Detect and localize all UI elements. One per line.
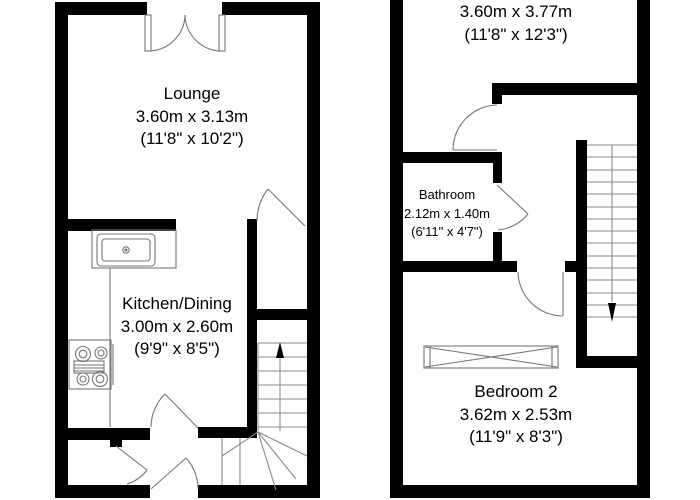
plan-symbols [0, 0, 700, 500]
bedroom2-door [518, 272, 563, 316]
floorplan: Lounge 3.60m x 3.13m (11'8" x 10'2") Kit… [0, 0, 700, 500]
room-dims-metric: 2.12m x 1.40m [404, 205, 490, 224]
room-dims-imperial: (11'9" x 8'3") [460, 426, 572, 449]
wardrobe-fixture [424, 346, 558, 368]
room-dims-metric: 3.62m x 2.53m [460, 404, 572, 427]
room-dims-metric: 3.00m x 2.60m [121, 316, 233, 339]
closet-door [116, 446, 147, 484]
bathroom-label: Bathroom 2.12m x 1.40m (6'11" x 4'7") [404, 186, 490, 242]
room-dims-imperial: (9'9" x 8'5") [121, 338, 233, 361]
lounge-label: Lounge 3.60m x 3.13m (11'8" x 10'2") [136, 83, 248, 151]
french-doors [145, 15, 225, 51]
lounge-door [257, 189, 305, 226]
room-dims-imperial: (11'8" x 10'2") [136, 128, 248, 151]
kitchen-door [151, 394, 198, 428]
sink-fixture [97, 234, 155, 266]
room-name: Kitchen/Dining [121, 293, 233, 316]
stove-fixture [69, 340, 113, 389]
room-dims-metric: 3.60m x 3.77m [460, 1, 572, 24]
front-door [151, 458, 198, 489]
room-dims-metric: 3.60m x 3.13m [136, 106, 248, 129]
first-floor-stairs [587, 145, 637, 322]
room-name: Lounge [136, 83, 248, 106]
room-name: Bathroom [404, 186, 490, 205]
kitchen-label: Kitchen/Dining 3.00m x 2.60m (9'9" x 8'5… [121, 293, 233, 361]
stairs-down-arrow-icon [608, 303, 616, 322]
ground-floor-stairs [222, 342, 307, 490]
room-dims-imperial: (6'11" x 4'7") [404, 223, 490, 242]
bedroom1-label: 3.60m x 3.77m (11'8" x 12'3") [460, 1, 572, 46]
bedroom2-label: Bedroom 2 3.62m x 2.53m (11'9" x 8'3") [460, 381, 572, 449]
room-dims-imperial: (11'8" x 12'3") [460, 24, 572, 47]
bedroom1-door [453, 105, 497, 150]
stairs-up-arrow-icon [276, 342, 284, 358]
room-name: Bedroom 2 [460, 381, 572, 404]
bathroom-door [497, 185, 528, 230]
